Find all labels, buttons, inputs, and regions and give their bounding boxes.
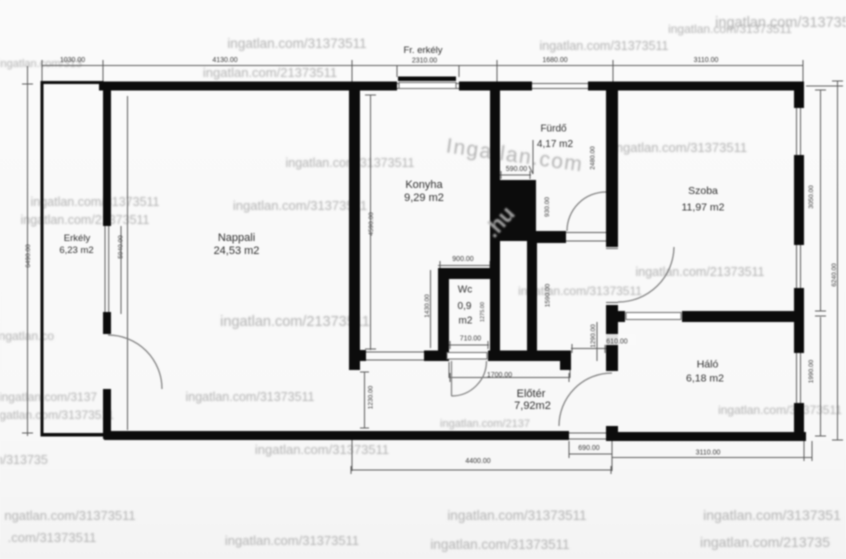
- svg-text:ingatlan.com/21373511: ingatlan.com/21373511: [220, 314, 370, 330]
- svg-text:ingatlan.com/31373511: ingatlan.com/31373511: [430, 537, 569, 552]
- svg-text:ingatlan.com/21373511: ingatlan.com/21373511: [203, 65, 337, 80]
- svg-text:1990.00: 1990.00: [808, 359, 815, 383]
- svg-text:ingatlan.com/31373511: ingatlan.com/31373511: [668, 22, 792, 36]
- svg-text:ingatlan.com/31373511: ingatlan.com/31373511: [447, 508, 586, 523]
- svg-text:Fr. erkély: Fr. erkély: [403, 45, 442, 56]
- svg-text:6,23 m2: 6,23 m2: [59, 245, 93, 256]
- svg-text:7,92m2: 7,92m2: [514, 400, 551, 412]
- svg-text:ingatlan.com/31373511: ingatlan.com/31373511: [225, 533, 359, 548]
- svg-text:3110.00: 3110.00: [696, 450, 721, 457]
- svg-text:590.00: 590.00: [506, 166, 528, 173]
- svg-text:ingatlan.com/21373511: ingatlan.com/21373511: [635, 265, 764, 279]
- svg-text:.com/31373511: .com/31373511: [8, 530, 97, 545]
- svg-text:ngatlan.com/31373511: ngatlan.com/31373511: [4, 508, 135, 523]
- svg-text:3110.00: 3110.00: [694, 57, 719, 64]
- svg-text:4400.00: 4400.00: [465, 458, 490, 465]
- svg-text:Előtér: Előtér: [517, 388, 546, 400]
- svg-text:Háló: Háló: [697, 359, 719, 371]
- svg-text:ingatlan.com/3137351: ingatlan.com/3137351: [703, 507, 841, 523]
- svg-text:6490.00: 6490.00: [25, 244, 32, 268]
- svg-text:ingatlan.com/31373511: ingatlan.com/31373511: [255, 442, 389, 457]
- svg-text:6240.00: 6240.00: [831, 263, 838, 287]
- svg-text:Konyha: Konyha: [405, 179, 443, 191]
- svg-text:710.00: 710.00: [460, 336, 482, 343]
- svg-text:2310.00: 2310.00: [412, 58, 437, 65]
- svg-text:1430.00: 1430.00: [424, 294, 431, 318]
- svg-text:ingatlan.com/31373511: ingatlan.com/31373511: [30, 195, 159, 209]
- svg-text:9,29 m2: 9,29 m2: [404, 192, 444, 204]
- svg-text:3050.00: 3050.00: [808, 185, 815, 209]
- svg-text:ingatlan.com/21373511: ingatlan.com/21373511: [20, 213, 149, 227]
- svg-text:m2: m2: [459, 316, 473, 327]
- svg-text:ingatlan.com/31373511: ingatlan.com/31373511: [613, 140, 747, 155]
- svg-text:5940.00: 5940.00: [118, 235, 125, 259]
- svg-text:11,97 m2: 11,97 m2: [682, 202, 725, 214]
- svg-text:ingatlan.com/31373511: ingatlan.com/31373511: [227, 36, 366, 51]
- svg-text:ingatlan.com/213735: ingatlan.com/213735: [700, 534, 830, 550]
- svg-text:4,17 m2: 4,17 m2: [537, 139, 574, 150]
- svg-text:Wc: Wc: [458, 285, 472, 296]
- svg-text:4130.00: 4130.00: [212, 57, 237, 64]
- svg-text:ingatlan.com/3137: ingatlan.com/3137: [0, 390, 97, 404]
- svg-text:6,18 m2: 6,18 m2: [686, 373, 724, 385]
- svg-text:24,53 m2: 24,53 m2: [214, 245, 260, 257]
- svg-text:ingatlan.com/2137: ingatlan.com/2137: [440, 418, 530, 430]
- svg-text:2480.00: 2480.00: [590, 146, 597, 170]
- svg-text:1030.00: 1030.00: [60, 57, 85, 64]
- svg-text:ingatlan.com/31373511: ingatlan.com/31373511: [233, 198, 367, 213]
- svg-text:1230.00: 1230.00: [368, 385, 375, 409]
- svg-text:Fürdő: Fürdő: [540, 124, 567, 135]
- svg-text:Szoba: Szoba: [688, 185, 718, 197]
- svg-text:m/313735: m/313735: [0, 453, 48, 467]
- svg-text:4590.00: 4590.00: [368, 212, 375, 236]
- svg-text:ingatlan.com/31373511: ingatlan.com/31373511: [185, 390, 314, 404]
- svg-text:Nappali: Nappali: [218, 232, 255, 244]
- svg-text:ingatlan.com/31373511: ingatlan.com/31373511: [0, 408, 114, 422]
- svg-text:690.00: 690.00: [578, 445, 600, 452]
- svg-text:1590.00: 1590.00: [545, 283, 552, 307]
- svg-text:ingatlan.com/31373511: ingatlan.com/31373511: [718, 403, 842, 417]
- svg-text:1290.00: 1290.00: [590, 324, 597, 348]
- svg-text:610.00: 610.00: [606, 339, 628, 346]
- svg-text:ingatlan.com/31373511: ingatlan.com/31373511: [539, 39, 668, 53]
- svg-text:1680.00: 1680.00: [542, 57, 567, 64]
- svg-text:1700.00: 1700.00: [487, 372, 512, 379]
- svg-text:900.00: 900.00: [452, 256, 474, 263]
- svg-text:1275.00: 1275.00: [480, 302, 486, 322]
- svg-text:0,9: 0,9: [458, 301, 472, 312]
- svg-text:930.00: 930.00: [544, 197, 551, 217]
- svg-text:Erkély: Erkély: [64, 233, 91, 244]
